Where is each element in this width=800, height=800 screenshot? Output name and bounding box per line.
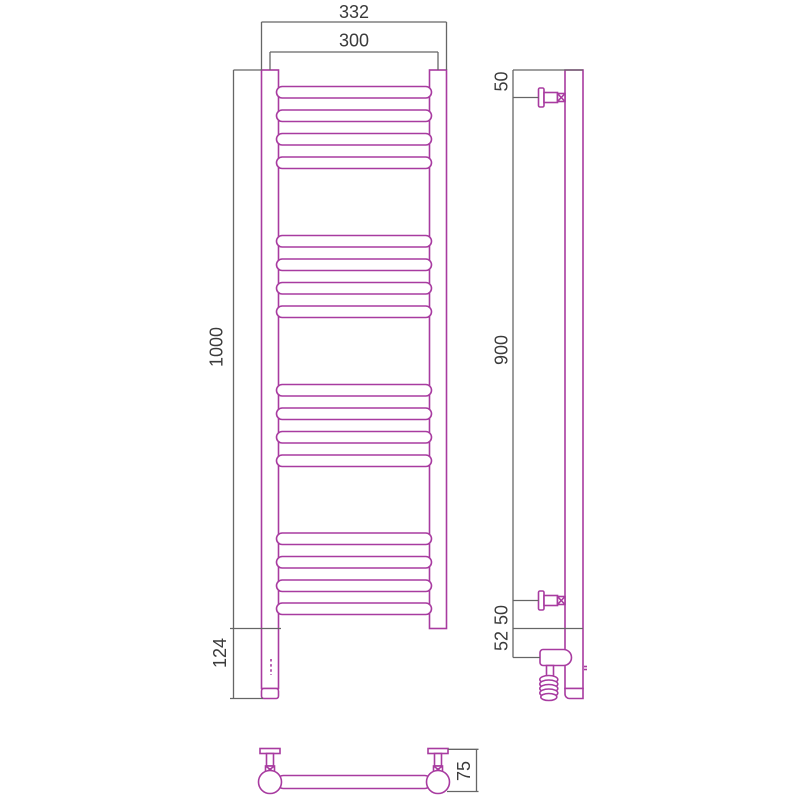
rung (277, 87, 432, 99)
bracket-stem (544, 93, 558, 103)
rung (277, 306, 432, 318)
rung (277, 533, 432, 545)
top-view: 75 (259, 749, 479, 794)
plan-right-bracket (428, 749, 448, 773)
bracket-stem (544, 596, 558, 606)
rung (277, 134, 432, 146)
front-view: 332 300 1000 124 (207, 2, 447, 699)
plan-rung-bar (277, 776, 431, 789)
bottom-wall-bracket (539, 591, 566, 610)
rung (277, 603, 432, 615)
front-left-tube-end-cap (262, 689, 279, 699)
dim-label-depth: 75 (454, 761, 474, 781)
rung (277, 157, 432, 169)
rung-group-2 (277, 236, 432, 318)
plan-right-tube-circle (427, 771, 450, 794)
rung (277, 408, 432, 420)
bracket-flange (539, 88, 545, 107)
rung-group-1 (277, 87, 432, 169)
dim-label-bracket-spacing: 900 (492, 335, 512, 365)
technical-drawing-canvas: 332 300 1000 124 (0, 0, 800, 800)
side-tube-end-cap (565, 689, 583, 699)
rung (277, 455, 432, 467)
top-view-dimensions: 75 (447, 749, 479, 791)
front-view-dimensions: 332 300 1000 124 (207, 2, 447, 699)
dim-label-top-bracket-offset: 50 (492, 71, 512, 91)
rung (277, 580, 432, 592)
rung (277, 283, 432, 295)
rung (277, 385, 432, 397)
front-right-tube (430, 70, 447, 629)
cable-coil-loop (541, 694, 557, 701)
rung (277, 557, 432, 569)
dim-label-heater-offset: 52 (492, 631, 512, 651)
plan-left-bracket (260, 749, 280, 773)
dim-label-width-overall: 332 (339, 2, 369, 22)
heater-housing (540, 650, 572, 666)
dim-label-width-centers: 300 (339, 31, 369, 51)
dim-label-bottom-bracket-offset: 50 (492, 605, 512, 625)
side-tube (565, 70, 583, 689)
rung (277, 259, 432, 271)
rung-group-4 (277, 533, 432, 615)
bracket-stem (435, 754, 442, 767)
dim-label-bottom-extension: 124 (210, 638, 230, 668)
bracket-flange (539, 591, 545, 610)
plan-left-tube-circle (259, 771, 282, 794)
cable-neck (547, 666, 554, 677)
top-wall-bracket (539, 88, 566, 107)
bracket-stem (267, 754, 274, 767)
rung (277, 236, 432, 248)
rung (277, 432, 432, 444)
dim-label-height-overall: 1000 (207, 327, 227, 367)
side-view: 50 900 50 52 (492, 70, 588, 701)
towel-rail-drawing: 332 300 1000 124 (0, 0, 800, 800)
rung (277, 110, 432, 122)
rung-group-3 (277, 385, 432, 467)
